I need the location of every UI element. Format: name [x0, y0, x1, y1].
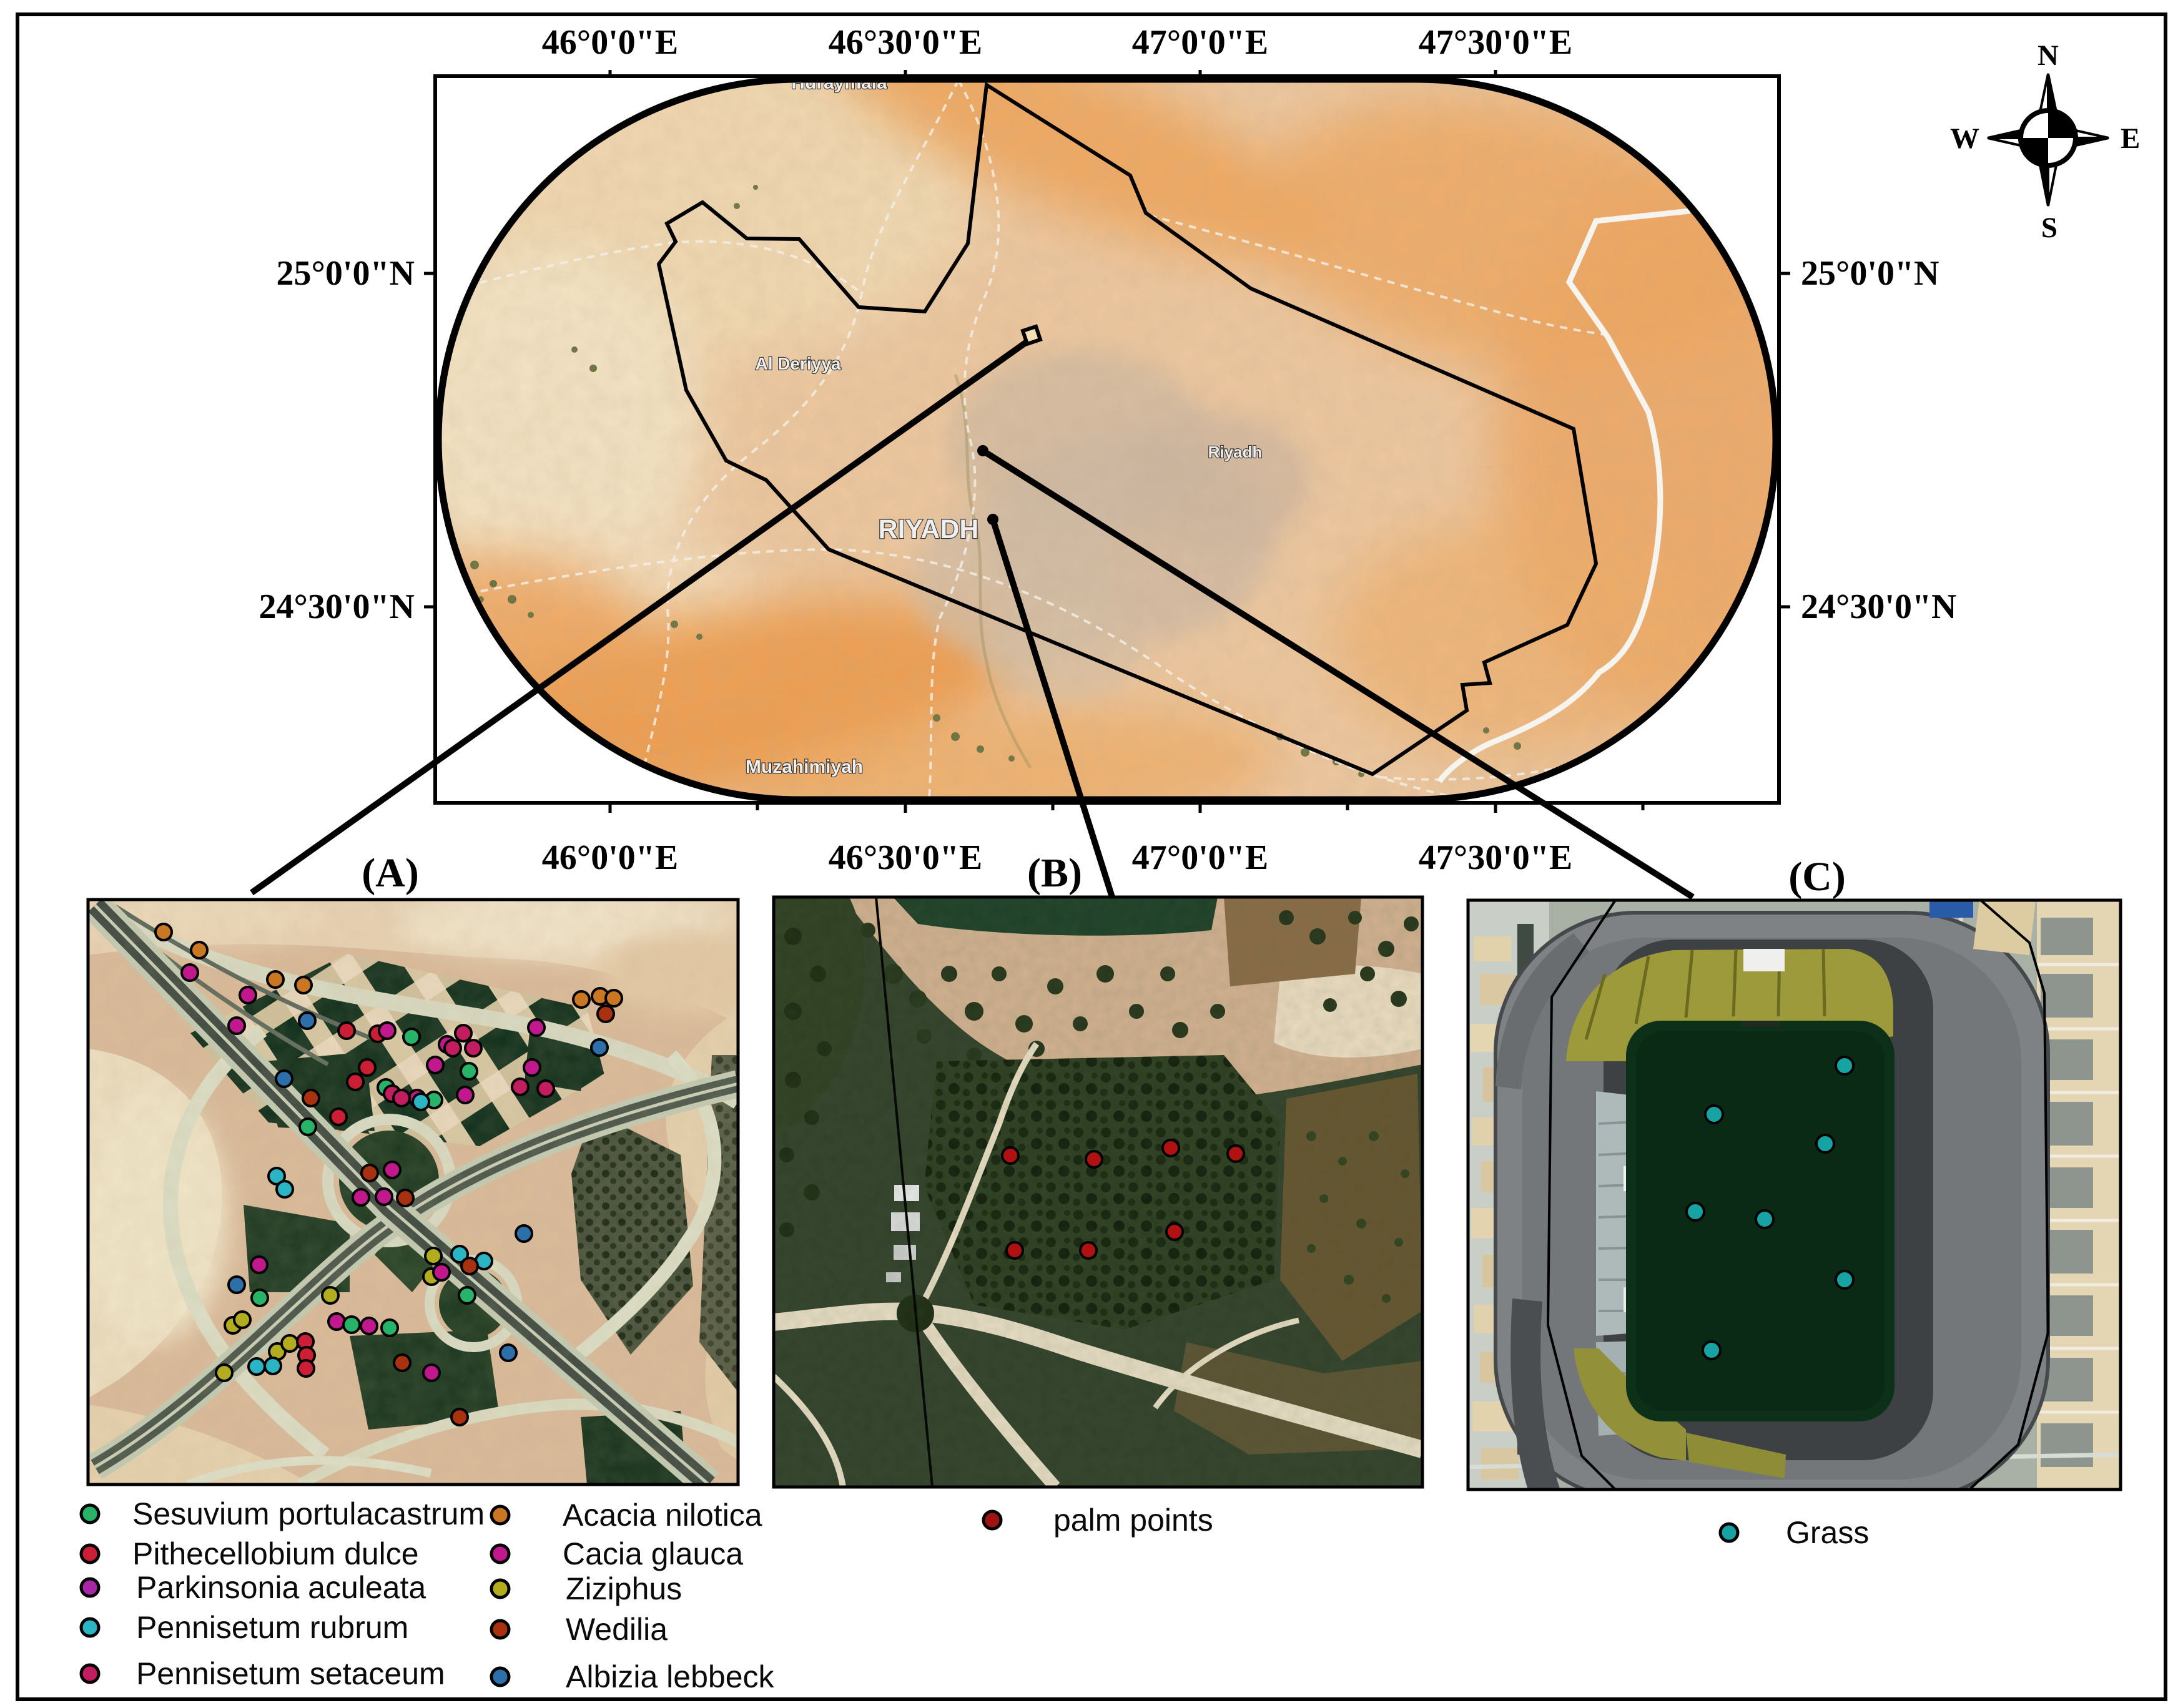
svg-text:Grass: Grass [1786, 1515, 1869, 1550]
svg-text:46°30'0"E: 46°30'0"E [829, 838, 982, 877]
svg-text:Al Deriyya: Al Deriyya [756, 354, 841, 373]
svg-text:47°30'0"E: 47°30'0"E [1419, 838, 1572, 877]
svg-text:46°0'0"E: 46°0'0"E [542, 838, 678, 877]
svg-text:Pennisetum setaceum: Pennisetum setaceum [136, 1656, 445, 1691]
svg-text:47°0'0"E: 47°0'0"E [1132, 23, 1268, 62]
svg-text:Pennisetum rubrum: Pennisetum rubrum [136, 1610, 408, 1645]
svg-text:47°30'0"E: 47°30'0"E [1419, 23, 1572, 62]
svg-text:S: S [2041, 212, 2057, 244]
svg-text:Cacia glauca: Cacia glauca [563, 1536, 743, 1571]
svg-text:(B): (B) [1027, 850, 1082, 896]
svg-text:Ziziphus: Ziziphus [566, 1571, 682, 1606]
svg-text:24°30'0"N: 24°30'0"N [259, 587, 415, 626]
svg-text:24°30'0"N: 24°30'0"N [1801, 587, 1956, 626]
svg-text:25°0'0"N: 25°0'0"N [277, 254, 415, 293]
svg-text:Wedilia: Wedilia [566, 1612, 668, 1647]
svg-text:46°30'0"E: 46°30'0"E [829, 23, 982, 62]
svg-text:47°0'0"E: 47°0'0"E [1132, 838, 1268, 877]
svg-text:Albizia lebbeck: Albizia lebbeck [566, 1659, 775, 1694]
svg-text:(A): (A) [362, 850, 419, 896]
svg-text:RIYADH: RIYADH [879, 514, 979, 544]
svg-text:Acacia nilotica: Acacia nilotica [563, 1498, 762, 1533]
svg-text:Parkinsonia aculeata: Parkinsonia aculeata [136, 1570, 426, 1605]
svg-text:palm points: palm points [1053, 1503, 1213, 1538]
svg-text:Pithecellobium dulce: Pithecellobium dulce [132, 1536, 419, 1571]
svg-text:(C): (C) [1788, 854, 1846, 900]
svg-text:Sesuvium portulacastrum: Sesuvium portulacastrum [132, 1496, 485, 1531]
svg-text:Muzahimiyah: Muzahimiyah [746, 757, 863, 777]
svg-text:25°0'0"N: 25°0'0"N [1801, 254, 1939, 293]
svg-text:Riyadh: Riyadh [1208, 443, 1263, 461]
svg-text:E: E [2121, 122, 2140, 155]
svg-text:N: N [2038, 39, 2059, 72]
svg-text:W: W [1950, 122, 1979, 155]
svg-text:46°0'0"E: 46°0'0"E [542, 23, 678, 62]
